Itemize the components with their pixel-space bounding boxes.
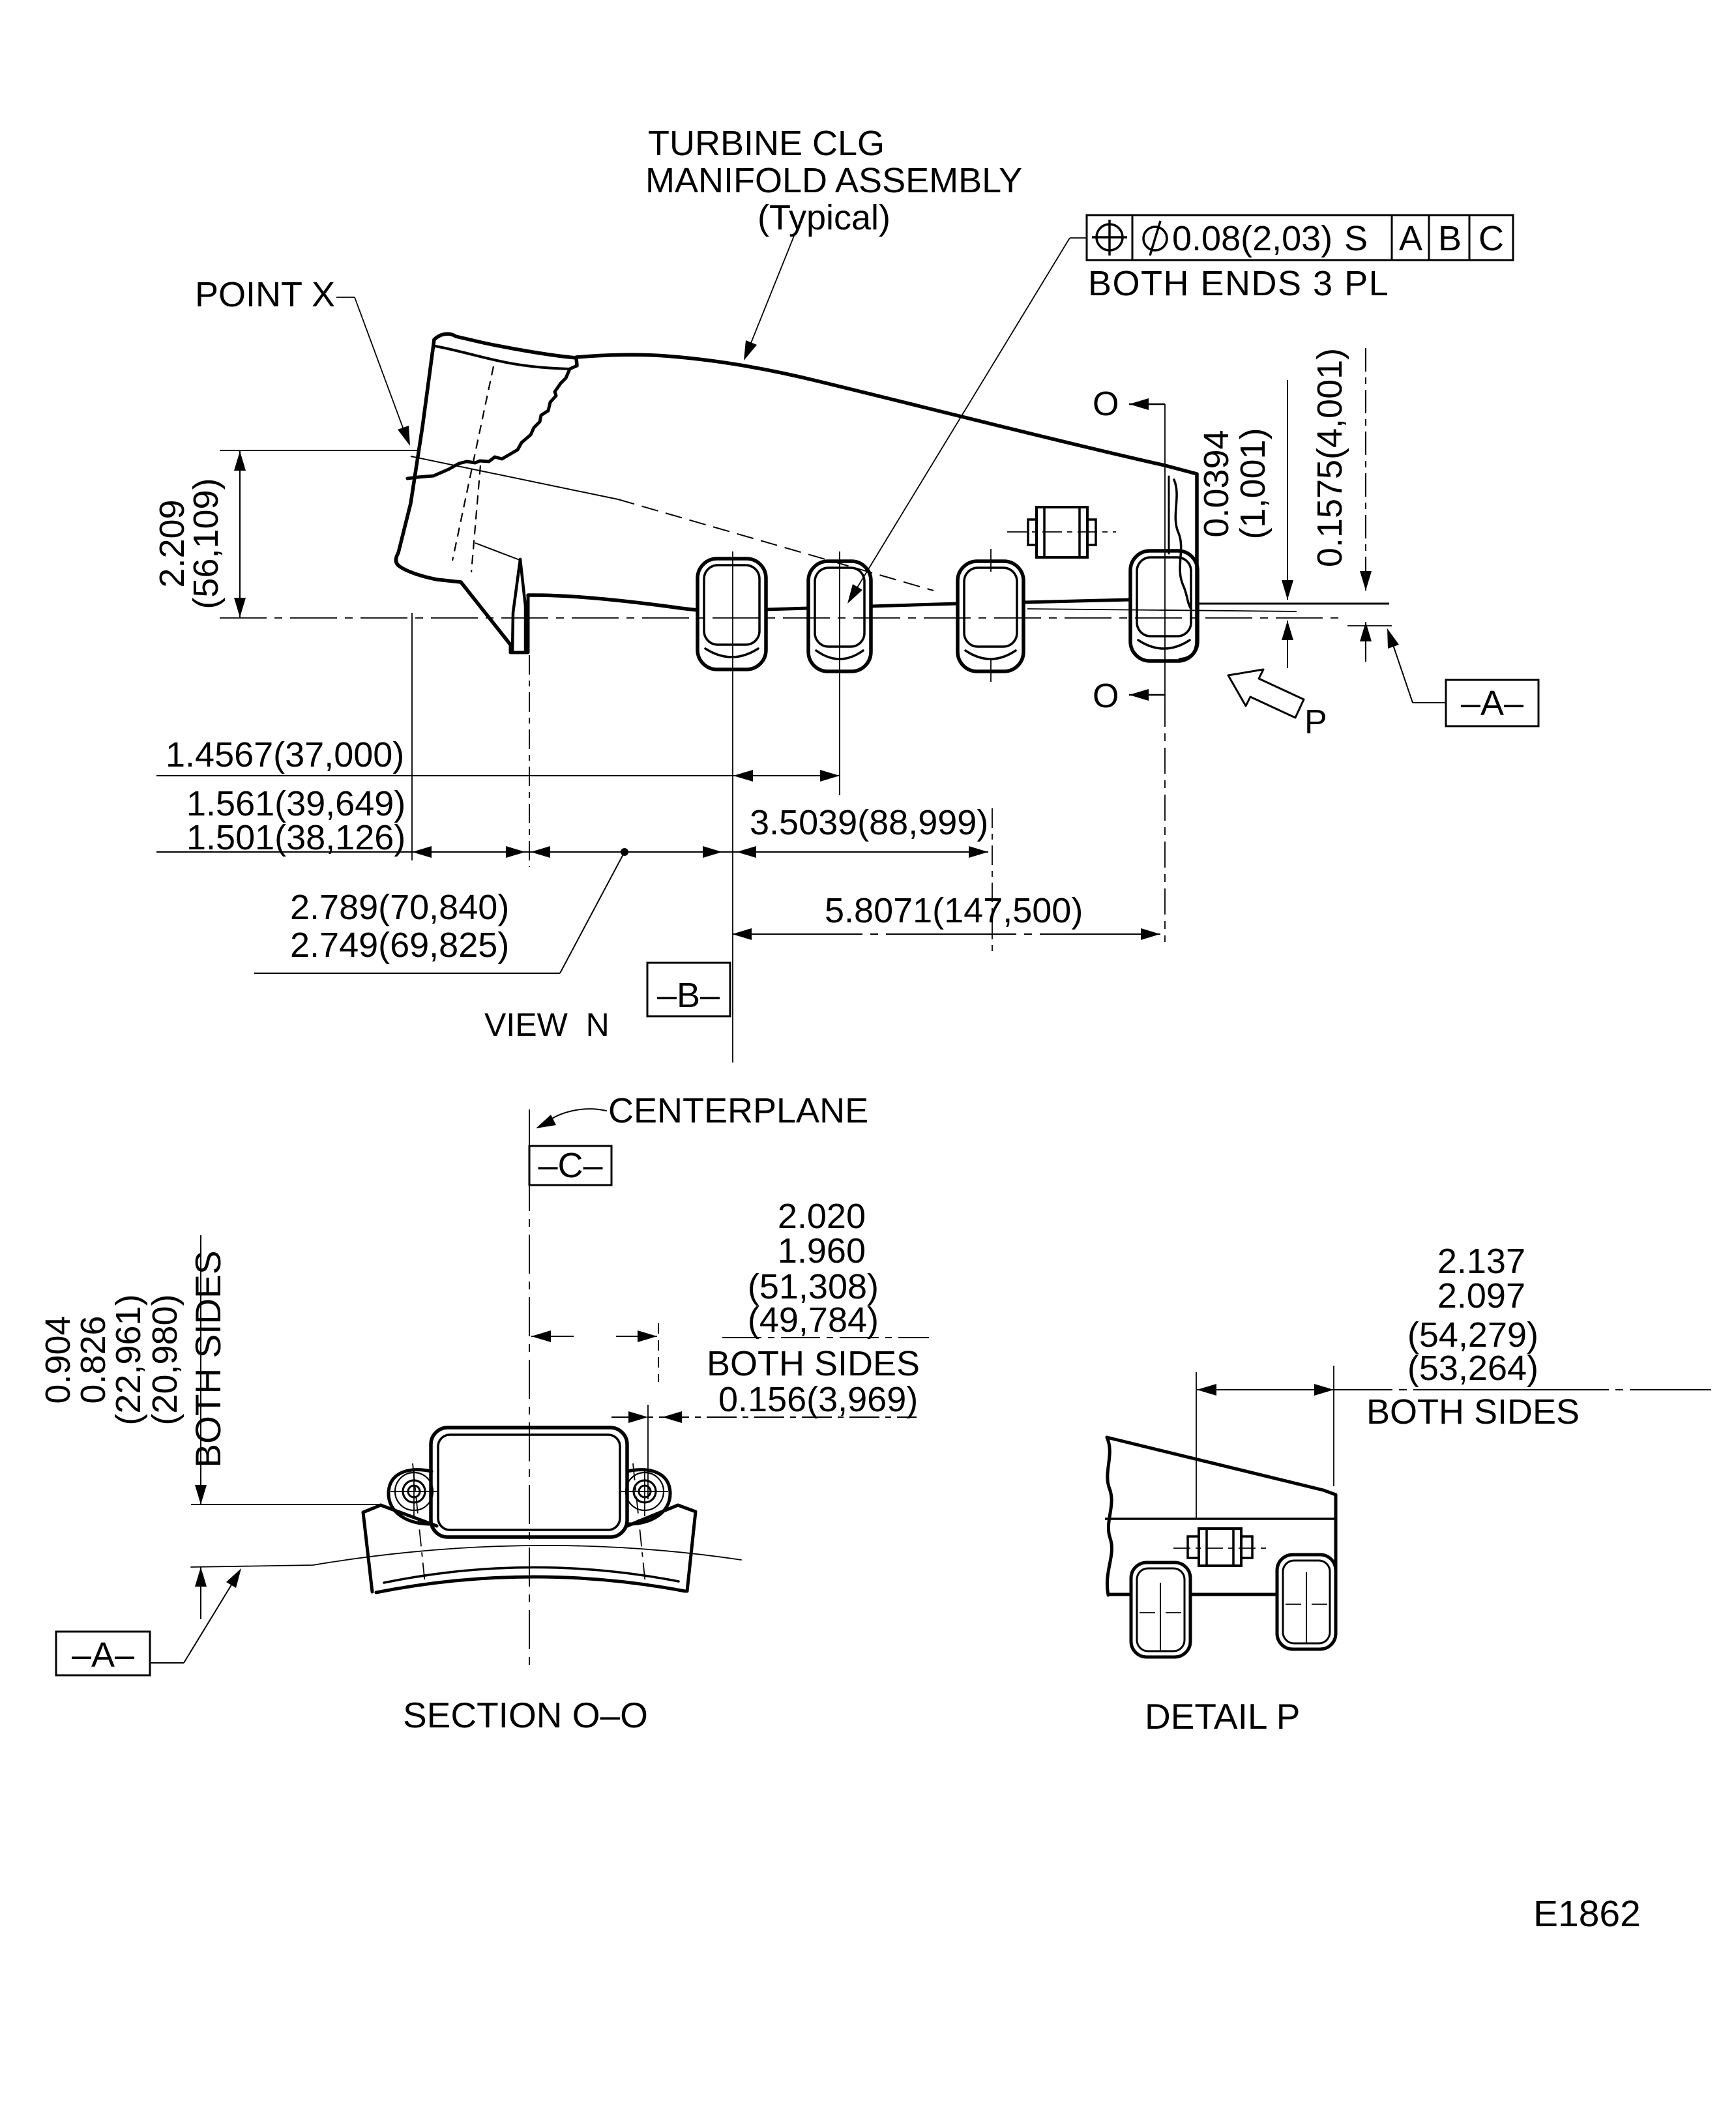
svg-text:–C–: –C– bbox=[538, 1146, 602, 1185]
svg-text:0.1575(4,001): 0.1575(4,001) bbox=[1310, 348, 1349, 567]
svg-text:1.960: 1.960 bbox=[778, 1231, 866, 1270]
svg-text:TURBINE CLG: TURBINE CLG bbox=[648, 124, 885, 163]
svg-text:S: S bbox=[1344, 219, 1368, 258]
svg-text:(56,109): (56,109) bbox=[186, 478, 226, 609]
svg-text:(53,264): (53,264) bbox=[1407, 1349, 1538, 1388]
svg-text:2.137: 2.137 bbox=[1437, 1242, 1525, 1281]
svg-text:CENTERPLANE: CENTERPLANE bbox=[608, 1091, 868, 1130]
svg-text:(49,784): (49,784) bbox=[748, 1300, 879, 1340]
svg-text:A: A bbox=[1399, 219, 1422, 258]
svg-text:3.5039(88,999): 3.5039(88,999) bbox=[750, 803, 988, 842]
svg-text:5.8071(147,500): 5.8071(147,500) bbox=[825, 891, 1083, 930]
svg-text:0.156(3,969): 0.156(3,969) bbox=[718, 1380, 918, 1419]
svg-text:VIEW N: VIEW N bbox=[484, 1006, 610, 1043]
svg-text:0.08(2,03): 0.08(2,03) bbox=[1172, 219, 1332, 258]
svg-text:2.209: 2.209 bbox=[153, 499, 192, 587]
svg-text:(1,001): (1,001) bbox=[1233, 428, 1273, 539]
svg-text:2.097: 2.097 bbox=[1437, 1276, 1525, 1315]
svg-text:POINT X: POINT X bbox=[195, 275, 335, 314]
svg-text:–A–: –A– bbox=[72, 1636, 134, 1675]
svg-text:(22,961): (22,961) bbox=[109, 1294, 148, 1425]
svg-text:DETAIL P: DETAIL P bbox=[1145, 1696, 1300, 1737]
svg-text:–A–: –A– bbox=[1461, 684, 1523, 723]
svg-text:2.749(69,825): 2.749(69,825) bbox=[290, 926, 509, 965]
svg-text:BOTH SIDES: BOTH SIDES bbox=[707, 1344, 920, 1383]
svg-text:MANIFOLD ASSEMBLY: MANIFOLD ASSEMBLY bbox=[645, 161, 1022, 200]
svg-text:2.020: 2.020 bbox=[778, 1197, 866, 1236]
svg-text:BOTH SIDES: BOTH SIDES bbox=[188, 1250, 228, 1467]
svg-text:E1862: E1862 bbox=[1533, 1893, 1641, 1935]
svg-text:BOTH SIDES: BOTH SIDES bbox=[1366, 1392, 1580, 1431]
svg-text:O: O bbox=[1093, 385, 1119, 423]
svg-text:C: C bbox=[1479, 219, 1504, 258]
svg-text:–B–: –B– bbox=[657, 976, 720, 1015]
svg-text:1.561(39,649): 1.561(39,649) bbox=[186, 784, 405, 823]
svg-text:0.826: 0.826 bbox=[74, 1315, 113, 1403]
svg-text:2.789(70,840): 2.789(70,840) bbox=[290, 888, 509, 927]
svg-text:BOTH ENDS 3 PL: BOTH ENDS 3 PL bbox=[1088, 264, 1389, 303]
svg-text:B: B bbox=[1438, 219, 1462, 258]
svg-text:0.0394: 0.0394 bbox=[1197, 430, 1236, 537]
svg-text:O: O bbox=[1093, 677, 1119, 715]
svg-text:(Typical): (Typical) bbox=[758, 198, 890, 237]
svg-text:(20,980): (20,980) bbox=[145, 1294, 184, 1425]
svg-text:SECTION O–O: SECTION O–O bbox=[403, 1695, 648, 1735]
svg-text:P: P bbox=[1304, 703, 1327, 741]
svg-text:1.4567(37,000): 1.4567(37,000) bbox=[166, 735, 404, 774]
svg-text:0.904: 0.904 bbox=[38, 1315, 78, 1403]
